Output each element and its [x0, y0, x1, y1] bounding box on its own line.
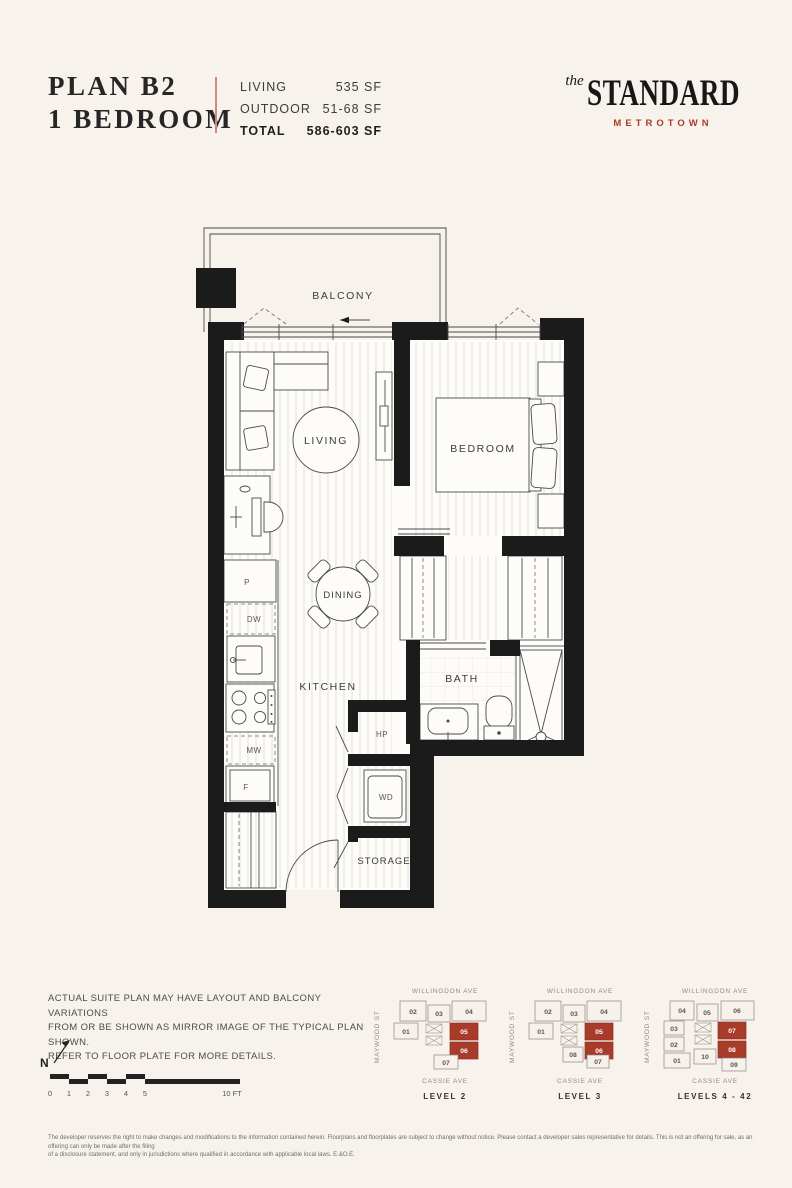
street-label-bottom: CASSIE AVE: [521, 1078, 639, 1085]
svg-text:07: 07: [442, 1060, 450, 1067]
label-dishwasher: DW: [247, 615, 261, 624]
svg-text:0: 0: [48, 1089, 52, 1098]
keyplan-building: 02 03 04 01 05 06 07: [392, 999, 492, 1075]
page-title: PLAN B2 1 BEDROOM: [48, 70, 233, 136]
svg-text:2: 2: [86, 1089, 90, 1098]
floor-plan: BALCONY LIVING BEDROOM DINING KITCHEN BA…: [186, 215, 606, 960]
label-washer-dryer: WD: [379, 793, 393, 802]
logo-prefix: the: [565, 73, 583, 90]
fridge: [226, 766, 274, 806]
north-arrow-icon: [44, 1036, 80, 1066]
street-label-left: MAYWOOD ST: [644, 999, 651, 1075]
shower: [516, 646, 566, 748]
street-label-bottom: CASSIE AVE: [386, 1078, 504, 1085]
disclaimer-note: ACTUAL SUITE PLAN MAY HAVE LAYOUT AND BA…: [48, 992, 378, 1065]
svg-text:03: 03: [570, 1011, 578, 1018]
legal-disclaimer: The developer reserves the right to make…: [48, 1134, 754, 1160]
column: [196, 268, 236, 308]
room-label-balcony: BALCONY: [312, 290, 373, 302]
keyplan-building: 02 03 04 01 05 06 08 07: [527, 999, 627, 1075]
svg-text:01: 01: [537, 1029, 545, 1036]
label-pantry: P: [244, 578, 250, 587]
pillow: [531, 447, 558, 489]
svg-text:02: 02: [409, 1009, 417, 1016]
pantry: [224, 560, 276, 602]
svg-text:01: 01: [402, 1029, 410, 1036]
tv-console: [376, 372, 392, 460]
svg-text:06: 06: [733, 1008, 741, 1015]
brand-logo: the STANDARD METROTOWN: [577, 72, 749, 129]
plan-type: 1 BEDROOM: [48, 103, 233, 136]
level-label: LEVELS 4 - 42: [656, 1092, 774, 1101]
plan-name: PLAN B2: [48, 70, 233, 103]
nightstand: [538, 362, 564, 396]
stat-living: LIVING 535 SF: [240, 76, 382, 98]
svg-text:04: 04: [465, 1009, 473, 1016]
room-label-kitchen: KITCHEN: [299, 681, 356, 693]
street-label-top: WILLINGDON AVE: [656, 988, 774, 995]
level-label: LEVEL 2: [386, 1092, 504, 1101]
room-label-dining: DINING: [323, 590, 362, 601]
cooktop: [226, 684, 275, 732]
room-label-bath: BATH: [445, 673, 479, 685]
label-fridge: F: [243, 783, 248, 792]
label-microwave: MW: [246, 746, 261, 755]
street-label-top: WILLINGDON AVE: [521, 988, 639, 995]
svg-text:08: 08: [569, 1052, 577, 1059]
svg-text:05: 05: [703, 1010, 711, 1017]
svg-text:5: 5: [143, 1089, 147, 1098]
nightstand: [538, 494, 564, 528]
street-label-left: MAYWOOD ST: [374, 999, 381, 1075]
keyplan-level-3: WILLINGDON AVE MAYWOOD ST 02 03 04 01 05…: [507, 988, 639, 1101]
svg-text:04: 04: [678, 1008, 686, 1015]
street-label-left: MAYWOOD ST: [509, 999, 516, 1075]
stat-value: 51-68 SF: [323, 102, 382, 116]
windows: [242, 308, 540, 340]
svg-text:07: 07: [728, 1028, 736, 1035]
logo-name: STANDARD: [587, 72, 740, 114]
svg-text:07: 07: [594, 1059, 602, 1066]
stat-value: 535 SF: [336, 80, 382, 94]
keyplan-building: 04 05 06 03 02 01 07 08 10 09: [662, 999, 762, 1075]
svg-text:04: 04: [600, 1009, 608, 1016]
stat-total: TOTAL 586-603 SF: [240, 120, 382, 142]
balcony: [196, 228, 446, 332]
slider-arrow-icon: [340, 317, 349, 323]
svg-text:06: 06: [460, 1048, 468, 1055]
area-stats: LIVING 535 SF OUTDOOR 51-68 SF TOTAL 586…: [240, 76, 382, 142]
stat-label: TOTAL: [240, 124, 286, 138]
svg-text:01: 01: [673, 1058, 681, 1065]
floorplan-sheet: PLAN B2 1 BEDROOM LIVING 535 SF OUTDOOR …: [0, 0, 792, 1188]
stat-outdoor: OUTDOOR 51-68 SF: [240, 98, 382, 120]
svg-text:02: 02: [670, 1042, 678, 1049]
scale-bar: 0 1 2 3 4 5 10 FT: [44, 1070, 254, 1100]
svg-text:1: 1: [67, 1089, 71, 1098]
pillow: [531, 403, 558, 445]
room-label-storage: STORAGE: [357, 856, 410, 867]
scale-end-label: 10 FT: [222, 1089, 242, 1098]
keyplan-level-2: WILLINGDON AVE MAYWOOD ST 02 03 04 01 05…: [372, 988, 504, 1101]
svg-text:06: 06: [595, 1048, 603, 1055]
room-label-bedroom: BEDROOM: [450, 443, 515, 455]
level-label: LEVEL 3: [521, 1092, 639, 1101]
svg-text:03: 03: [435, 1011, 443, 1018]
svg-text:09: 09: [730, 1062, 738, 1069]
svg-text:10: 10: [701, 1054, 709, 1061]
svg-text:08: 08: [728, 1047, 736, 1054]
stat-label: OUTDOOR: [240, 102, 311, 116]
stat-label: LIVING: [240, 80, 287, 94]
stat-value: 586-603 SF: [307, 124, 382, 138]
label-heat-pump: HP: [376, 730, 388, 739]
svg-text:4: 4: [124, 1089, 128, 1098]
svg-text:05: 05: [460, 1029, 468, 1036]
svg-text:02: 02: [544, 1009, 552, 1016]
svg-text:03: 03: [670, 1026, 678, 1033]
north-label: N: [40, 1056, 49, 1070]
street-label-top: WILLINGDON AVE: [386, 988, 504, 995]
street-label-bottom: CASSIE AVE: [656, 1078, 774, 1085]
logo-subtitle: METROTOWN: [577, 118, 749, 129]
room-label-living: LIVING: [304, 435, 348, 447]
header-divider: [215, 77, 217, 133]
vanity-sink: [420, 704, 478, 740]
svg-text:05: 05: [595, 1029, 603, 1036]
toilet: [484, 696, 514, 740]
keyplan-levels-4-42: WILLINGDON AVE MAYWOOD ST 04 05 06 03: [642, 988, 774, 1101]
svg-text:3: 3: [105, 1089, 109, 1098]
